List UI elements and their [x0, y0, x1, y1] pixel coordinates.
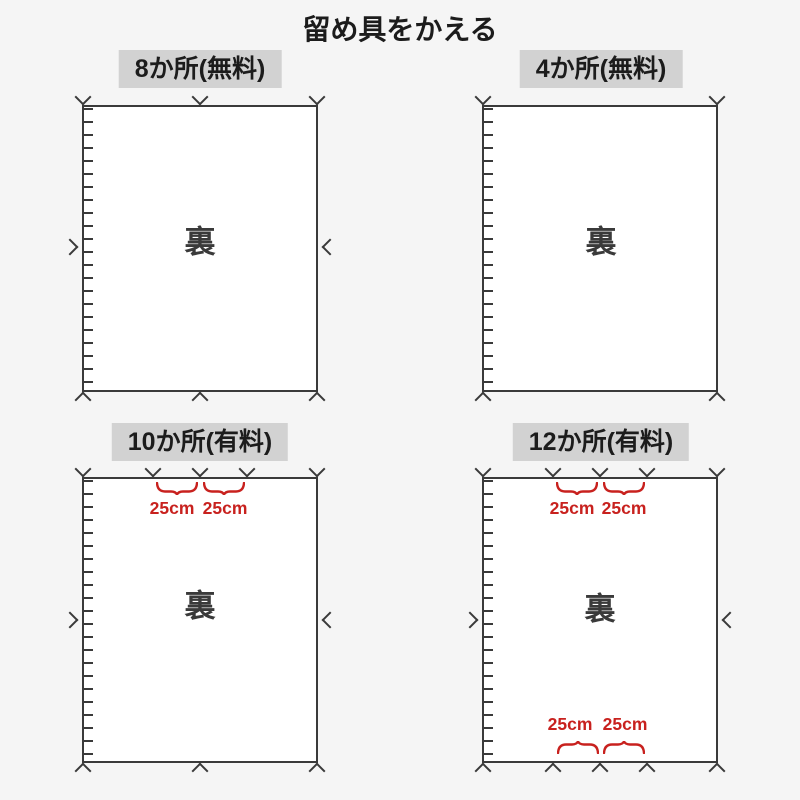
- fastener-arrow-down-icon: [309, 89, 326, 106]
- fastener-arrow-down-icon: [75, 461, 92, 478]
- fastener-arrow-down-icon: [639, 461, 656, 478]
- panel-header-12-places: 12か所(有料): [513, 423, 689, 461]
- back-side-label: 裏: [185, 217, 216, 262]
- fastener-arrow-down-icon: [475, 89, 492, 106]
- measure-brace-icon: [603, 482, 645, 495]
- fastener-arrow-down-icon: [309, 461, 326, 478]
- fastener-arrow-down-icon: [145, 461, 162, 478]
- fastener-arrow-up-icon: [475, 392, 492, 409]
- measure-brace-icon: [603, 741, 645, 754]
- measurement-label: 25cm: [550, 498, 595, 519]
- fastener-arrow-up-icon: [75, 763, 92, 780]
- measure-brace-icon: [156, 482, 198, 495]
- back-side-label: 裏: [586, 217, 617, 262]
- fastener-arrow-up-icon: [709, 763, 726, 780]
- fastener-arrow-down-icon: [709, 89, 726, 106]
- measurement-label: 25cm: [603, 714, 648, 735]
- page-title: 留め具をかえる: [302, 8, 497, 48]
- fastener-arrow-right-icon: [62, 239, 79, 256]
- fastener-arrow-left-icon: [722, 612, 739, 629]
- fastener-arrow-down-icon: [709, 461, 726, 478]
- fastener-arrow-down-icon: [75, 89, 92, 106]
- stitch-ticks: [84, 480, 93, 760]
- back-side-label: 裏: [585, 584, 616, 629]
- fastener-arrow-down-icon: [475, 461, 492, 478]
- fastener-arrow-right-icon: [62, 612, 79, 629]
- stitch-ticks: [84, 108, 93, 389]
- panel-header-4-places: 4か所(無料): [520, 50, 683, 88]
- measurement-label: 25cm: [548, 714, 593, 735]
- measurement-label: 25cm: [203, 498, 248, 519]
- fastener-arrow-up-icon: [309, 763, 326, 780]
- stitch-ticks: [484, 108, 493, 389]
- fastener-arrow-down-icon: [545, 461, 562, 478]
- panel-header-8-places: 8か所(無料): [119, 50, 282, 88]
- fastener-arrow-up-icon: [192, 763, 209, 780]
- fastener-arrow-down-icon: [192, 461, 209, 478]
- measure-brace-icon: [557, 741, 599, 754]
- fastener-arrow-up-icon: [75, 392, 92, 409]
- measure-brace-icon: [203, 482, 245, 495]
- stitch-ticks: [484, 480, 493, 760]
- fastener-arrow-down-icon: [239, 461, 256, 478]
- fastener-arrow-up-icon: [639, 763, 656, 780]
- measurement-label: 25cm: [602, 498, 647, 519]
- fastener-arrow-left-icon: [322, 239, 339, 256]
- fastener-arrow-up-icon: [309, 392, 326, 409]
- fastener-arrow-up-icon: [592, 763, 609, 780]
- measurement-label: 25cm: [150, 498, 195, 519]
- panel-header-10-places: 10か所(有料): [112, 423, 288, 461]
- back-side-label: 裏: [185, 581, 216, 626]
- fastener-arrow-down-icon: [592, 461, 609, 478]
- measure-brace-icon: [556, 482, 598, 495]
- fastener-arrow-up-icon: [192, 392, 209, 409]
- fastener-arrow-down-icon: [192, 89, 209, 106]
- fastener-arrow-up-icon: [545, 763, 562, 780]
- fastener-arrow-up-icon: [475, 763, 492, 780]
- fastener-arrow-up-icon: [709, 392, 726, 409]
- fastener-arrow-left-icon: [322, 612, 339, 629]
- fastener-arrow-right-icon: [462, 612, 479, 629]
